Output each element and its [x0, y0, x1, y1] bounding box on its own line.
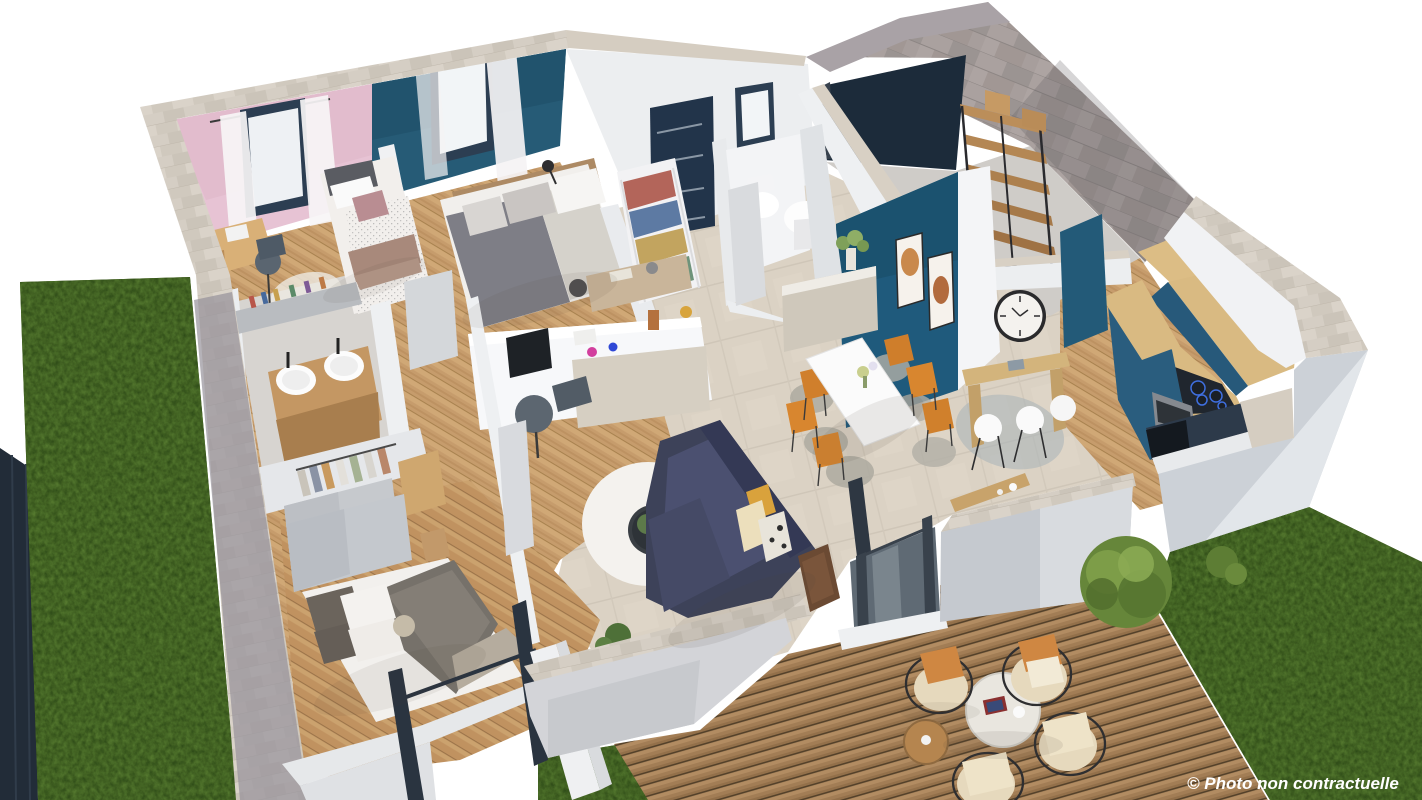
- svg-text:© Photo non contractuelle: © Photo non contractuelle: [1187, 774, 1399, 793]
